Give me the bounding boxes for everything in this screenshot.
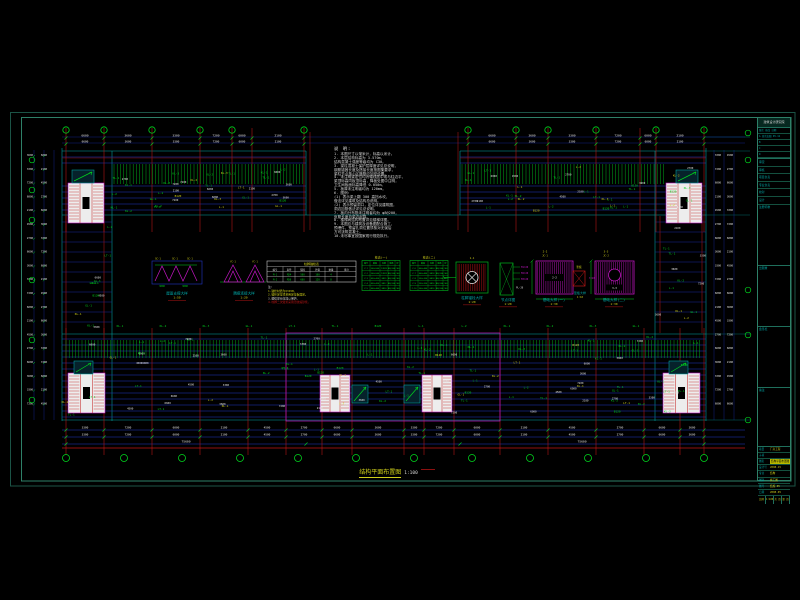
svg-text:7200: 7200 <box>27 181 34 185</box>
svg-text:7200: 7200 <box>41 250 48 254</box>
svg-text:L-2: L-2 <box>524 385 529 389</box>
svg-text:3000: 3000 <box>159 285 165 288</box>
svg-text:450×450: 450×450 <box>371 283 380 285</box>
svg-text:备注: 备注 <box>344 267 349 271</box>
svg-text:3600: 3600 <box>41 332 48 336</box>
svg-text:1:30: 1:30 <box>550 302 557 306</box>
stamp-cell: 第 页 <box>782 496 790 504</box>
svg-text:2100: 2100 <box>221 433 228 437</box>
svg-text:KL-3: KL-3 <box>138 351 145 355</box>
svg-text:B120: B120 <box>670 190 677 194</box>
svg-text:2700: 2700 <box>301 433 308 437</box>
svg-text:2700: 2700 <box>27 236 34 240</box>
svg-text:2100: 2100 <box>275 140 282 144</box>
svg-text:2700: 2700 <box>687 166 694 170</box>
svg-text:L-2: L-2 <box>684 316 689 320</box>
svg-text:GL-1: GL-1 <box>633 324 640 328</box>
drawing-title-text: 结构平面布置图 <box>359 469 401 478</box>
svg-text:JC-1: JC-1 <box>542 254 548 257</box>
svg-text:6600: 6600 <box>727 401 734 405</box>
svg-text:3300: 3300 <box>41 236 48 240</box>
svg-text:3600: 3600 <box>639 181 646 185</box>
svg-text:柱脚锚栓表: 柱脚锚栓表 <box>304 261 319 266</box>
svg-text:Φ8@100: Φ8@100 <box>388 268 396 270</box>
titleblock-box-label: 会签栏 <box>759 327 767 331</box>
svg-text:L-1: L-1 <box>473 378 478 382</box>
svg-text:编号: 编号 <box>273 267 278 271</box>
svg-text:2700: 2700 <box>715 222 722 226</box>
svg-text:B120: B120 <box>375 324 382 328</box>
svg-text:L-1: L-1 <box>219 205 224 209</box>
svg-text:B120: B120 <box>92 293 99 297</box>
svg-text:1:10: 1:10 <box>577 295 584 299</box>
svg-text:截面: 截面 <box>421 261 425 265</box>
svg-text:LT-1: LT-1 <box>104 254 111 258</box>
svg-text:8Φ20: 8Φ20 <box>430 268 436 270</box>
svg-text:B120: B120 <box>435 353 442 357</box>
svg-text:Z-9: Z-9 <box>412 283 416 285</box>
svg-text:KL-2: KL-2 <box>62 400 69 404</box>
svg-text:TL-1: TL-1 <box>469 368 476 372</box>
svg-text:2100: 2100 <box>521 426 528 430</box>
svg-text:KL-1: KL-1 <box>465 178 472 182</box>
svg-text:2700: 2700 <box>727 167 734 171</box>
svg-text:3600: 3600 <box>27 153 34 157</box>
svg-text:Z-3: Z-3 <box>364 278 368 280</box>
svg-text:C40: C40 <box>444 268 448 270</box>
svg-text:KL-3: KL-3 <box>163 181 170 185</box>
svg-text:L-2: L-2 <box>461 324 466 328</box>
svg-text:12Φ25: 12Φ25 <box>381 268 388 270</box>
svg-text:TL-1: TL-1 <box>263 176 270 180</box>
svg-text:KL-1: KL-1 <box>441 343 448 347</box>
svg-text:KL-3: KL-3 <box>214 197 221 201</box>
svg-text:KL-2: KL-2 <box>155 204 162 208</box>
svg-text:Z-7: Z-7 <box>412 273 416 275</box>
svg-text:2100: 2100 <box>41 277 48 281</box>
notes-lines: 1. 本图尺寸以毫米计，标高以米计。2. 本层结构标高为 3.570m， 结构混… <box>334 153 456 239</box>
svg-text:7200: 7200 <box>436 426 443 430</box>
svg-text:7200: 7200 <box>727 222 734 226</box>
svg-text:6600: 6600 <box>41 319 48 323</box>
svg-text:L-1: L-1 <box>623 204 628 208</box>
svg-text:7200: 7200 <box>715 388 722 392</box>
svg-text:KL-2: KL-2 <box>492 374 499 378</box>
svg-text:6000: 6000 <box>584 361 591 365</box>
svg-text:3600: 3600 <box>375 426 382 430</box>
svg-text:500×500: 500×500 <box>371 273 380 275</box>
svg-text:编号: 编号 <box>412 261 416 265</box>
svg-text:柱表(二): 柱表(二) <box>423 255 436 260</box>
svg-text:Φ8@100: Φ8@100 <box>388 283 396 285</box>
svg-text:KL-1: KL-1 <box>261 170 268 174</box>
svg-text:6600: 6600 <box>27 360 34 364</box>
svg-text:TL-1: TL-1 <box>261 335 268 339</box>
svg-text:3000: 3000 <box>182 285 188 288</box>
floor-plan-drawing: 6600360033007200600021006600360033007200… <box>0 0 800 600</box>
svg-text:TL-1: TL-1 <box>68 412 75 416</box>
svg-text:砼: 砼 <box>396 261 398 265</box>
svg-text:L-2: L-2 <box>208 398 213 402</box>
svg-text:3600: 3600 <box>375 433 382 437</box>
svg-text:L-1: L-1 <box>694 341 699 345</box>
svg-text:LT-1: LT-1 <box>289 324 296 328</box>
svg-text:500×500: 500×500 <box>371 268 380 270</box>
svg-text:6600: 6600 <box>81 134 88 138</box>
svg-text:GL-1: GL-1 <box>275 204 282 208</box>
svg-text:4500: 4500 <box>136 361 143 365</box>
svg-text:外露: 外露 <box>315 267 320 271</box>
svg-text:GL-1: GL-1 <box>150 197 157 201</box>
svg-text:6000: 6000 <box>27 305 34 309</box>
svg-text:3600: 3600 <box>727 305 734 309</box>
svg-text:6600: 6600 <box>715 236 722 240</box>
titleblock-box-label: 出图章 <box>759 266 767 270</box>
svg-text:TL-1: TL-1 <box>669 252 676 256</box>
svg-text:L-2: L-2 <box>508 197 513 201</box>
svg-text:2100: 2100 <box>521 433 528 437</box>
svg-text:7200: 7200 <box>279 404 286 408</box>
svg-text:6000: 6000 <box>238 134 245 138</box>
svg-text:2100: 2100 <box>582 398 589 402</box>
svg-text:75600: 75600 <box>181 440 190 444</box>
svg-text:Z-10: Z-10 <box>412 288 418 290</box>
svg-text:6600: 6600 <box>89 342 96 346</box>
svg-text:6600: 6600 <box>334 426 341 430</box>
svg-text:300×300: 300×300 <box>419 288 428 290</box>
svg-text:YC-1: YC-1 <box>230 261 236 264</box>
svg-text:Φ8@100: Φ8@100 <box>436 278 444 280</box>
svg-text:4500: 4500 <box>376 379 383 383</box>
svg-text:3300: 3300 <box>27 167 34 171</box>
svg-text:LT-1: LT-1 <box>135 384 142 388</box>
svg-text:Z-8: Z-8 <box>412 278 416 280</box>
svg-text:6000: 6000 <box>274 170 281 174</box>
svg-text:3600: 3600 <box>528 134 535 138</box>
stamp-cell: 1:100 <box>766 496 774 504</box>
svg-text:GL-1: GL-1 <box>246 324 253 328</box>
svg-text:TL-1: TL-1 <box>418 371 425 375</box>
svg-text:L-1: L-1 <box>404 394 409 398</box>
svg-text:3300: 3300 <box>727 208 734 212</box>
title-block: 建筑设计研究院版次 修改 日期A 首次出图 05.12B C D 审定审核项目负… <box>757 117 791 481</box>
svg-text:6600: 6600 <box>488 134 495 138</box>
svg-text:M-1: M-1 <box>273 273 278 276</box>
svg-text:L-1: L-1 <box>669 286 674 290</box>
svg-text:7200: 7200 <box>172 198 179 202</box>
svg-text:B120: B120 <box>533 208 540 212</box>
svg-text:JC-2: JC-2 <box>603 254 609 257</box>
svg-text:12Φ22: 12Φ22 <box>381 273 388 275</box>
svg-text:L-1: L-1 <box>584 190 589 194</box>
svg-text:6000: 6000 <box>715 181 722 185</box>
svg-text:6600: 6600 <box>715 346 722 350</box>
svg-text:KL-3: KL-3 <box>172 172 179 176</box>
svg-text:3600: 3600 <box>41 222 48 226</box>
svg-text:4500: 4500 <box>727 374 734 378</box>
svg-text:6000: 6000 <box>715 291 722 295</box>
svg-text:2100: 2100 <box>249 187 256 191</box>
svg-text:2100: 2100 <box>41 388 48 392</box>
svg-text:L-2: L-2 <box>107 225 112 229</box>
svg-text:3600: 3600 <box>286 182 293 186</box>
svg-text:L-1: L-1 <box>610 203 615 207</box>
svg-text:B120: B120 <box>337 366 344 370</box>
svg-text:L-2: L-2 <box>417 346 422 350</box>
svg-text:4500: 4500 <box>512 174 519 178</box>
svg-text:6600: 6600 <box>27 250 34 254</box>
svg-text:2100: 2100 <box>727 250 734 254</box>
svg-text:2700: 2700 <box>122 177 129 181</box>
svg-text:KL-2: KL-2 <box>160 324 167 328</box>
svg-text:4500: 4500 <box>41 401 48 405</box>
svg-text:2700: 2700 <box>617 433 624 437</box>
svg-text:6600: 6600 <box>41 208 48 212</box>
svg-text:砼: 砼 <box>444 261 446 265</box>
svg-text:LT-1: LT-1 <box>484 169 491 173</box>
titleblock-field-row: 专业负责 <box>758 182 790 190</box>
svg-text:GL-1: GL-1 <box>242 196 249 200</box>
svg-text:7200: 7200 <box>125 426 132 430</box>
svg-text:2700: 2700 <box>565 172 572 176</box>
svg-text:Z-1: Z-1 <box>364 268 368 270</box>
svg-text:6000: 6000 <box>570 387 577 391</box>
svg-text:6600: 6600 <box>95 276 102 280</box>
detail-drawings: SC-1SC-1SC-130003000屋面支撑大样1:50YC-1YC-1隅撑… <box>152 250 634 307</box>
svg-text:3600: 3600 <box>655 312 662 316</box>
svg-text:6000: 6000 <box>491 174 498 178</box>
svg-text:LT-1: LT-1 <box>663 390 670 394</box>
svg-text:Z-6: Z-6 <box>412 268 416 270</box>
svg-text:1:30: 1:30 <box>610 302 617 306</box>
svg-text:4500: 4500 <box>188 382 195 386</box>
svg-text:KL-3: KL-3 <box>684 186 691 190</box>
svg-text:LT-1: LT-1 <box>514 360 521 364</box>
svg-text:3600: 3600 <box>689 433 696 437</box>
svg-text:B120: B120 <box>614 410 621 414</box>
svg-text:3600: 3600 <box>358 398 365 402</box>
svg-text:6000: 6000 <box>27 194 34 198</box>
svg-text:GL-1: GL-1 <box>457 392 464 396</box>
svg-text:M30: M30 <box>287 278 292 281</box>
svg-text:直径: 直径 <box>287 267 292 271</box>
svg-text:SC-1: SC-1 <box>155 258 161 261</box>
svg-text:4500: 4500 <box>264 433 271 437</box>
svg-text:M24: M24 <box>287 273 292 276</box>
svg-text:GL-1: GL-1 <box>90 281 97 285</box>
svg-text:GL-1: GL-1 <box>686 199 693 203</box>
svg-text:PL-20: PL-20 <box>516 287 524 290</box>
svg-text:锚固: 锚固 <box>300 267 305 271</box>
svg-text:KL-2: KL-2 <box>619 344 626 348</box>
svg-text:LT-1: LT-1 <box>623 401 630 405</box>
svg-text:M1=20: M1=20 <box>521 266 529 269</box>
svg-text:7200: 7200 <box>172 182 179 186</box>
svg-text:6000: 6000 <box>644 134 651 138</box>
svg-text:2700: 2700 <box>41 305 48 309</box>
svg-text:4500: 4500 <box>715 208 722 212</box>
svg-text:3300: 3300 <box>172 134 179 138</box>
svg-text:3300: 3300 <box>300 342 307 346</box>
svg-text:6000: 6000 <box>727 346 734 350</box>
svg-text:KL-3: KL-3 <box>203 324 210 328</box>
svg-text:6600: 6600 <box>82 140 89 144</box>
svg-text:2100: 2100 <box>27 319 34 323</box>
svg-text:7200: 7200 <box>436 433 443 437</box>
svg-text:2100: 2100 <box>674 226 681 230</box>
notes-block: 说 明: 1. 本图尺寸以毫米计，标高以米计。2. 本层结构标高为 3.570m… <box>334 146 456 239</box>
svg-text:600: 600 <box>300 278 305 281</box>
svg-text:6000: 6000 <box>715 401 722 405</box>
svg-text:KL-1: KL-1 <box>588 338 595 342</box>
svg-text:2100: 2100 <box>221 426 228 430</box>
svg-text:2100: 2100 <box>677 140 684 144</box>
svg-text:6Φ16: 6Φ16 <box>430 288 436 290</box>
svg-text:3300: 3300 <box>568 134 575 138</box>
svg-text:纵筋: 纵筋 <box>382 261 386 265</box>
titleblock-header: 建筑设计研究院 <box>758 118 790 128</box>
svg-text:3600: 3600 <box>124 134 131 138</box>
svg-text:KL-1: KL-1 <box>504 324 511 328</box>
svg-text:L-2: L-2 <box>548 204 553 208</box>
svg-text:KL-1: KL-1 <box>117 324 124 328</box>
svg-text:4500: 4500 <box>555 390 562 394</box>
svg-text:GL-1: GL-1 <box>690 310 697 314</box>
svg-text:3600: 3600 <box>27 374 34 378</box>
svg-text:L-1: L-1 <box>139 340 144 344</box>
svg-text:TL-1: TL-1 <box>553 175 560 179</box>
cad-viewport[interactable]: 6600360033007200600021006600360033007200… <box>0 0 800 600</box>
svg-text:KL-3: KL-3 <box>221 171 228 175</box>
svg-text:3300: 3300 <box>411 433 418 437</box>
svg-text:KL-1: KL-1 <box>75 312 82 316</box>
svg-text:Φ8@100: Φ8@100 <box>436 273 444 275</box>
svg-text:2100: 2100 <box>668 378 675 382</box>
svg-text:2700: 2700 <box>271 193 278 197</box>
svg-text:7200: 7200 <box>451 410 458 414</box>
svg-text:7200: 7200 <box>614 134 621 138</box>
svg-text:3600: 3600 <box>671 267 678 271</box>
svg-text:垫板: 垫板 <box>576 265 582 269</box>
svg-text:2100: 2100 <box>27 208 34 212</box>
svg-text:3600: 3600 <box>617 356 624 360</box>
svg-text:7200: 7200 <box>212 134 219 138</box>
svg-text:4500: 4500 <box>264 426 271 430</box>
svg-text:KL-1: KL-1 <box>595 356 602 360</box>
svg-text:Z-5: Z-5 <box>364 288 368 290</box>
svg-text:6000: 6000 <box>474 433 481 437</box>
svg-text:2100: 2100 <box>715 194 722 198</box>
svg-text:Φ8@100: Φ8@100 <box>388 278 396 280</box>
svg-text:KL-1: KL-1 <box>125 183 132 187</box>
svg-text:7200: 7200 <box>213 140 220 144</box>
svg-text:3300: 3300 <box>223 383 230 387</box>
svg-text:8Φ16: 8Φ16 <box>430 283 436 285</box>
svg-text:LT-1: LT-1 <box>238 186 245 190</box>
svg-text:1:50: 1:50 <box>173 296 180 300</box>
svg-text:LT-1: LT-1 <box>89 395 96 399</box>
titleblock-box: 注册师章 <box>758 205 790 266</box>
svg-text:KL-1: KL-1 <box>577 384 584 388</box>
titleblock-field-row: 审核 <box>758 167 790 175</box>
svg-text:2700: 2700 <box>617 426 624 430</box>
svg-text:7200: 7200 <box>715 167 722 171</box>
svg-text:6600: 6600 <box>659 426 666 430</box>
svg-text:6000: 6000 <box>173 433 180 437</box>
svg-text:2100: 2100 <box>317 406 324 410</box>
svg-text:箍筋: 箍筋 <box>389 261 393 265</box>
svg-text:2700: 2700 <box>484 384 491 388</box>
svg-text:B120: B120 <box>317 371 324 375</box>
svg-text:4500: 4500 <box>41 291 48 295</box>
svg-text:B120: B120 <box>681 363 688 367</box>
svg-text:2100: 2100 <box>727 360 734 364</box>
stamp-cell: 比例 <box>758 496 766 504</box>
svg-text:2700: 2700 <box>314 337 321 341</box>
svg-text:450×450: 450×450 <box>371 278 380 280</box>
svg-text:6000: 6000 <box>41 153 48 157</box>
svg-text:3600: 3600 <box>727 194 734 198</box>
titleblock-stamp-grid: 比例1:100共 页第 页 <box>758 496 790 504</box>
svg-text:2100: 2100 <box>193 354 200 358</box>
svg-text:7200: 7200 <box>637 339 644 343</box>
svg-text:L-1: L-1 <box>509 395 514 399</box>
svg-text:8Φ22: 8Φ22 <box>382 283 388 285</box>
svg-text:4500: 4500 <box>27 332 34 336</box>
svg-text:M-2: M-2 <box>273 278 278 281</box>
svg-text:8Φ18: 8Φ18 <box>430 273 436 275</box>
svg-text:LT-1: LT-1 <box>169 341 176 345</box>
svg-text:3300: 3300 <box>700 254 707 258</box>
titleblock-revision-table: 版次 修改 日期A 首次出图 05.12B C D <box>758 128 790 159</box>
svg-text:L-2: L-2 <box>576 165 581 169</box>
svg-text:KL-3: KL-3 <box>590 324 597 328</box>
svg-text:2-2: 2-2 <box>543 250 548 254</box>
svg-text:400×400: 400×400 <box>419 273 428 275</box>
svg-text:4500: 4500 <box>127 406 134 410</box>
svg-text:1:20: 1:20 <box>468 300 475 304</box>
svg-text:2100: 2100 <box>274 134 281 138</box>
svg-text:B120: B120 <box>175 194 182 198</box>
svg-text:3300: 3300 <box>715 263 722 267</box>
svg-text:C40: C40 <box>444 288 448 290</box>
svg-text:SC-1: SC-1 <box>172 258 178 261</box>
svg-text:M2=20: M2=20 <box>521 272 529 275</box>
svg-text:LT-1: LT-1 <box>282 366 289 370</box>
svg-text:LT-1: LT-1 <box>385 390 392 394</box>
svg-text:4500: 4500 <box>41 181 48 185</box>
svg-text:C40: C40 <box>444 273 448 275</box>
svg-text:400×400: 400×400 <box>371 288 380 290</box>
svg-text:6600: 6600 <box>451 353 458 357</box>
svg-text:KL-2: KL-2 <box>677 279 684 283</box>
svg-text:8Φ18: 8Φ18 <box>430 278 436 280</box>
svg-text:2100: 2100 <box>41 167 48 171</box>
svg-text:KL-2: KL-2 <box>515 194 522 198</box>
svg-text:箍筋: 箍筋 <box>437 261 441 265</box>
svg-text:C40: C40 <box>396 288 400 290</box>
svg-text:4500: 4500 <box>677 205 684 209</box>
svg-text:B120: B120 <box>603 207 610 211</box>
svg-text:6000: 6000 <box>173 426 180 430</box>
drawing-title-scale: 1:100 <box>404 471 418 476</box>
svg-text:6600: 6600 <box>727 291 734 295</box>
svg-text:6000: 6000 <box>320 397 327 401</box>
svg-text:KL-2: KL-2 <box>407 365 414 369</box>
svg-text:L-1: L-1 <box>367 353 372 357</box>
svg-text:8Φ20: 8Φ20 <box>382 288 388 290</box>
svg-text:7200: 7200 <box>41 360 48 364</box>
